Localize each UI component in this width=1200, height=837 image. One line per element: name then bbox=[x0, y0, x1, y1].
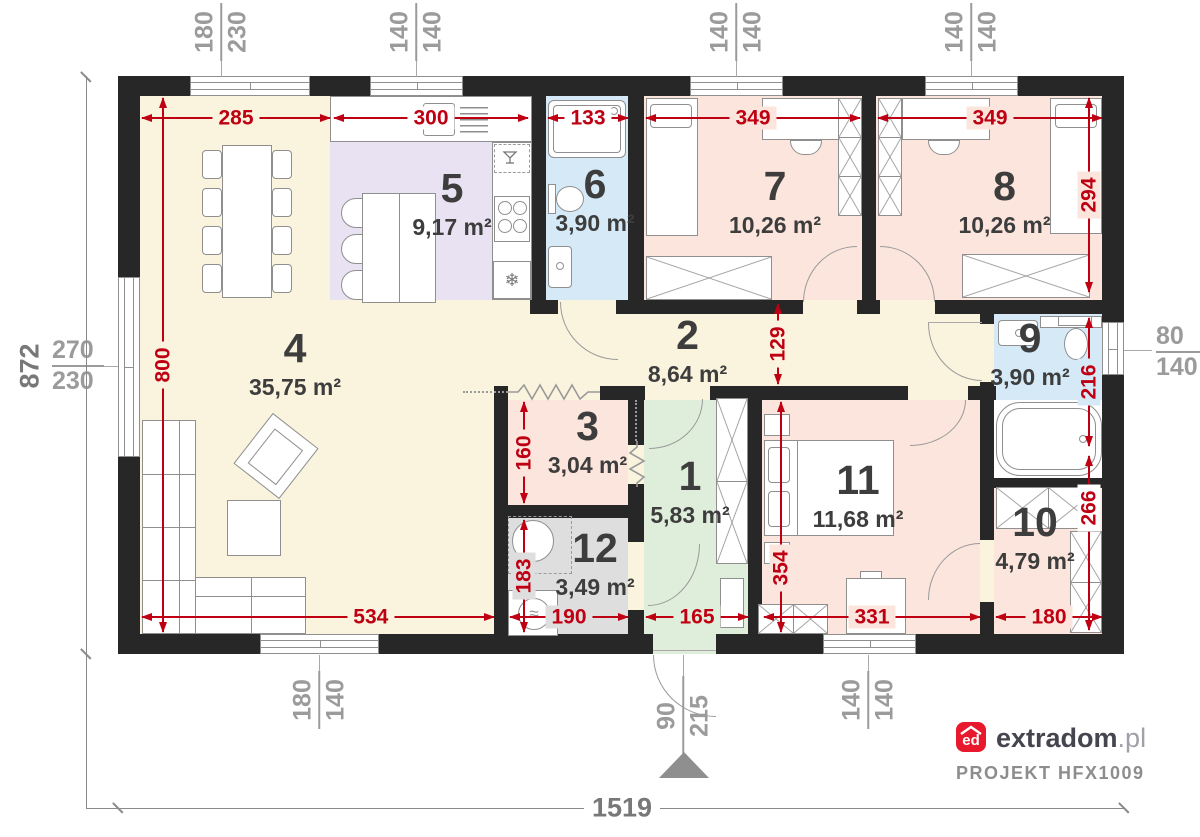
dining-chair bbox=[272, 226, 292, 255]
window-size-label: 140140 bbox=[942, 3, 1000, 61]
dining-table bbox=[222, 145, 272, 298]
room-label-8: 8 10,26 m² bbox=[952, 166, 1057, 239]
coffee-table bbox=[227, 500, 281, 556]
window-size-label: 140140 bbox=[839, 671, 897, 729]
wall-hall-top-d bbox=[935, 300, 1102, 314]
dining-chair bbox=[202, 226, 222, 255]
wall-room3-entry-c bbox=[628, 610, 644, 654]
room-label-2: 2 8,64 m² bbox=[640, 315, 735, 388]
dining-chair bbox=[272, 150, 292, 179]
leader-line bbox=[683, 655, 684, 677]
dresser-8 bbox=[962, 254, 1090, 298]
room-label-3: 3 3,04 m² bbox=[540, 406, 635, 479]
room-label-7: 7 10,26 m² bbox=[725, 166, 825, 239]
window-right bbox=[1102, 322, 1124, 375]
dining-chair bbox=[202, 264, 222, 293]
dresser-7 bbox=[646, 256, 772, 300]
window-size-label: 140140 bbox=[387, 3, 445, 61]
wall-kitchen-bath6 bbox=[530, 96, 546, 314]
window-size-label: 180230 bbox=[192, 3, 250, 61]
room-label-9: 9 3,90 m² bbox=[980, 318, 1080, 391]
project-code: PROJEKT HFX1009 bbox=[956, 763, 1145, 784]
window-top-3 bbox=[690, 76, 783, 96]
room-area: 35,75 m² bbox=[240, 374, 350, 401]
bar-stool bbox=[341, 270, 363, 300]
room-label-11: 11 11,68 m² bbox=[808, 460, 908, 533]
brand-text: extradom.pl bbox=[996, 725, 1146, 752]
sofa-horizontal bbox=[195, 577, 306, 634]
entrance-arrow-icon bbox=[659, 752, 709, 778]
window-left bbox=[118, 277, 140, 457]
wall-bed11-right-a bbox=[980, 400, 994, 478]
window-bottom-1 bbox=[260, 634, 379, 654]
window-size-label: 180140 bbox=[290, 671, 348, 729]
wall-bed7-bed8 bbox=[862, 96, 876, 314]
window-size-label: 270230 bbox=[52, 338, 104, 394]
room-label-12: 12 3,49 m² bbox=[545, 528, 645, 601]
room-label-1: 1 5,83 m² bbox=[645, 456, 735, 529]
dining-chair bbox=[202, 188, 222, 217]
room-label-4: 4 35,75 m² bbox=[240, 328, 350, 401]
freezer-icon: ❄ bbox=[504, 270, 519, 291]
bar-stool bbox=[341, 234, 363, 264]
dotted-partition bbox=[463, 391, 508, 393]
bar-stool bbox=[341, 198, 363, 228]
nightstand bbox=[764, 414, 790, 436]
wall-bed11-right-c bbox=[980, 602, 994, 654]
door-size-label: 90215 bbox=[654, 676, 712, 756]
window-size-label: 140140 bbox=[707, 3, 765, 61]
accordion-door-top-icon bbox=[508, 383, 600, 401]
wall-hall-top-c bbox=[857, 300, 880, 314]
window-top-2 bbox=[370, 76, 463, 96]
room-label-6: 6 3,90 m² bbox=[545, 164, 645, 237]
leader-line bbox=[104, 366, 118, 367]
dishwasher-icon bbox=[501, 150, 523, 167]
wall-room3-left bbox=[494, 386, 508, 654]
sink-6 bbox=[548, 246, 572, 288]
window-bottom-2 bbox=[823, 634, 916, 654]
overall-width-label: 1519 bbox=[584, 793, 660, 824]
dining-chair bbox=[202, 150, 222, 179]
dining-chair bbox=[272, 264, 292, 293]
window-top-4 bbox=[925, 76, 1018, 96]
room-label-10: 10 4,79 m² bbox=[985, 502, 1085, 575]
window-size-label: 80140 bbox=[1156, 324, 1200, 380]
leader-line bbox=[1124, 350, 1152, 351]
dining-chair bbox=[272, 188, 292, 217]
entrance-threshold-line bbox=[653, 650, 716, 651]
wall-hall-top-a bbox=[546, 300, 558, 314]
dotted-partition bbox=[635, 400, 637, 441]
sofa-vertical bbox=[142, 420, 196, 634]
floor-plan: ❄ bbox=[0, 0, 1200, 837]
logo-roof-icon bbox=[960, 725, 982, 735]
room-number: 4 bbox=[240, 328, 350, 369]
heater-wave-icon: ≈ bbox=[529, 604, 538, 624]
overall-height-label: 872 bbox=[15, 335, 46, 396]
window-top-1 bbox=[190, 76, 310, 96]
extradom-logo-icon: ed bbox=[956, 722, 986, 752]
freezer: ❄ bbox=[493, 261, 531, 299]
overall-height-line bbox=[86, 76, 87, 808]
kitchen-drainer bbox=[460, 107, 488, 133]
room-label-5: 5 9,17 m² bbox=[402, 168, 502, 241]
